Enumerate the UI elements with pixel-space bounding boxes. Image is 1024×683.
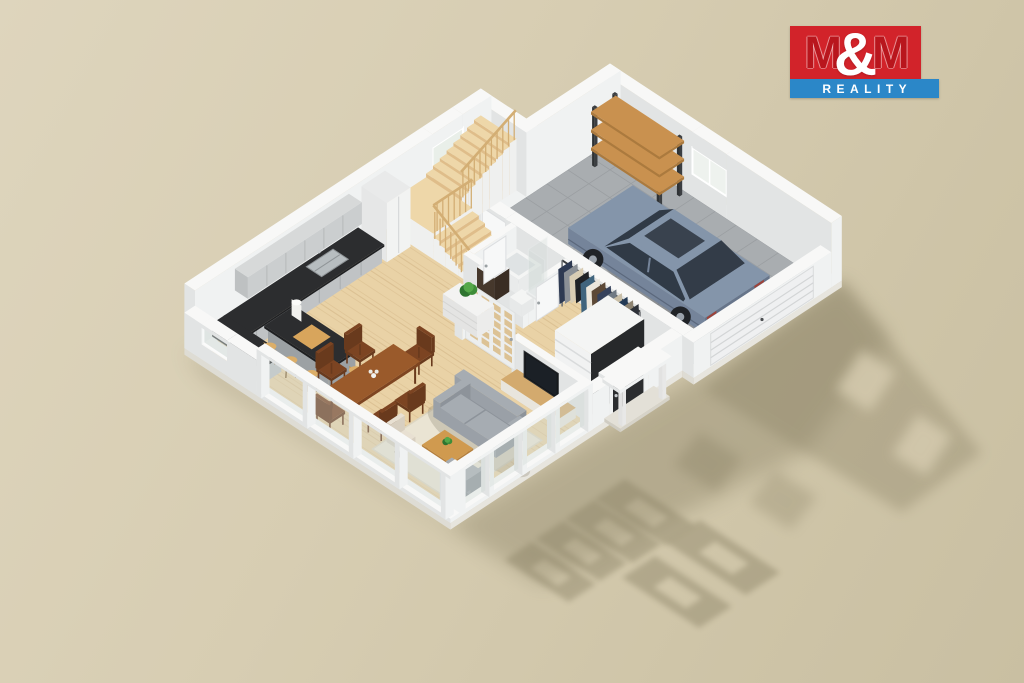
floor-plan-3d xyxy=(0,0,1024,683)
logo-red-box: M & M xyxy=(790,26,921,79)
mm-reality-logo: M & M REALITY xyxy=(790,26,940,98)
logo-ampersand: & xyxy=(834,25,877,85)
floor-plan-render: M & M REALITY xyxy=(0,0,1024,683)
logo-letter-m-right: M xyxy=(872,30,907,75)
